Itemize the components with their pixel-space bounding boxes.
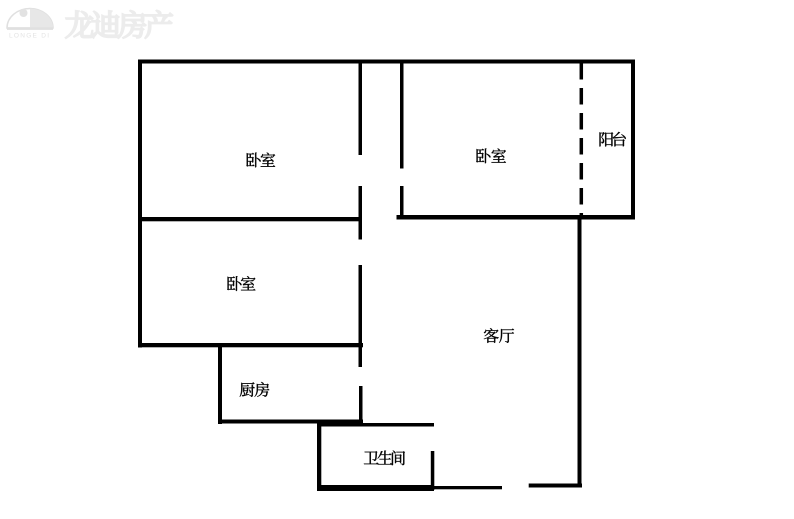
svg-text:LONGE DI: LONGE DI [9,33,49,40]
